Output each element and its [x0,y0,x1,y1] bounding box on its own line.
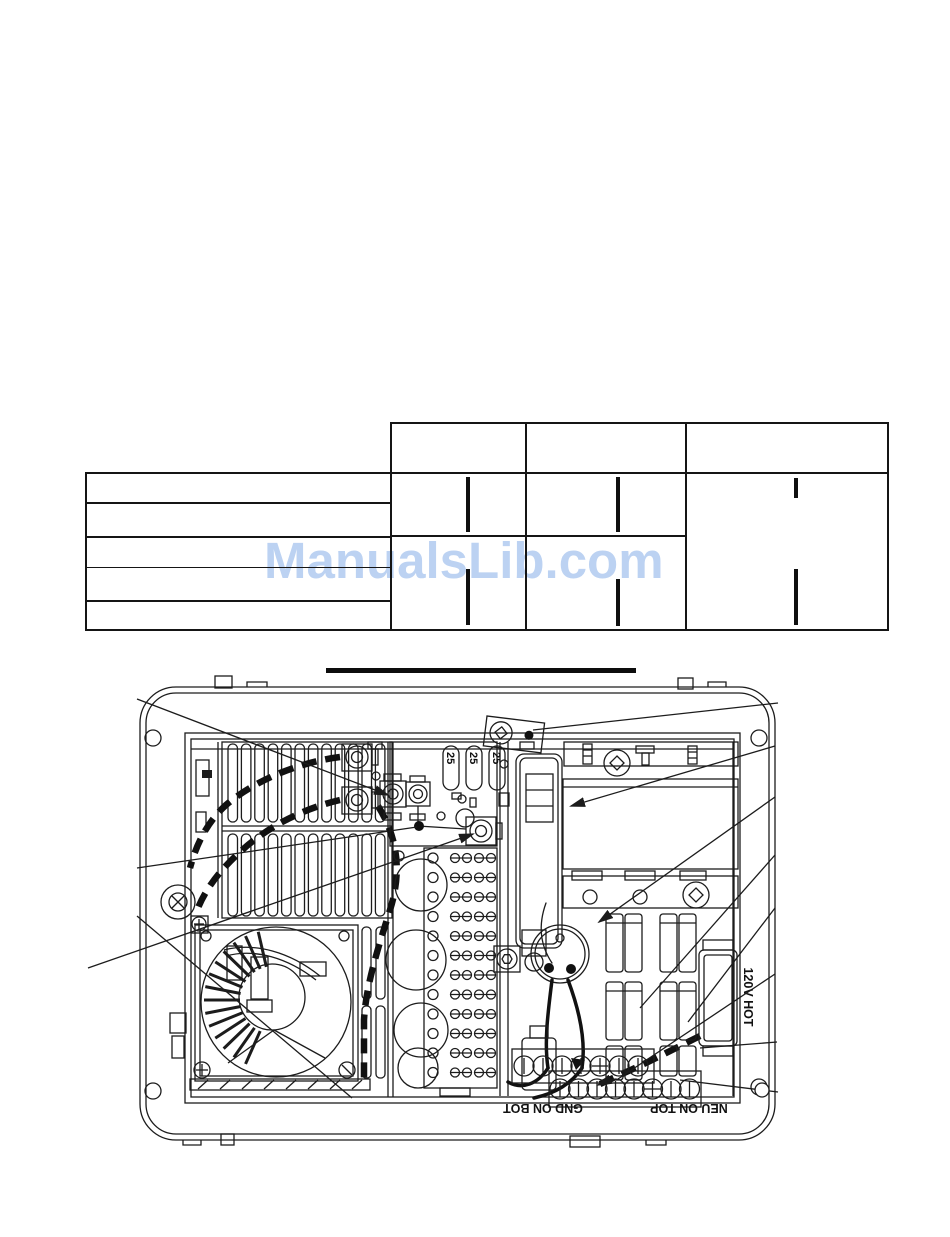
callout-ring [755,1083,769,1097]
fuse-rating-label: 25 [467,752,479,764]
receptacle-120v: 120V HOT [699,940,755,1056]
fuse-rating-label: 25 [444,752,456,764]
cooling-fan [170,925,385,1090]
hot-label: 120V HOT [741,967,755,1026]
air-grille [196,742,392,918]
power-center-diagram: 25 25 25 [0,0,950,1237]
neutral-label: NEU ON TOP [650,1101,728,1115]
ground-label: GND ON BOT [503,1101,583,1115]
center-terminal-strip [386,848,497,1096]
manual-page: ManualsLib.com [0,0,950,1237]
mounting-bracket [483,716,544,753]
capacitor-bank [606,914,696,1080]
transformer-assembly [563,742,738,1096]
fuse-block: 25 25 25 [443,746,505,827]
connector-wires [508,980,583,1098]
